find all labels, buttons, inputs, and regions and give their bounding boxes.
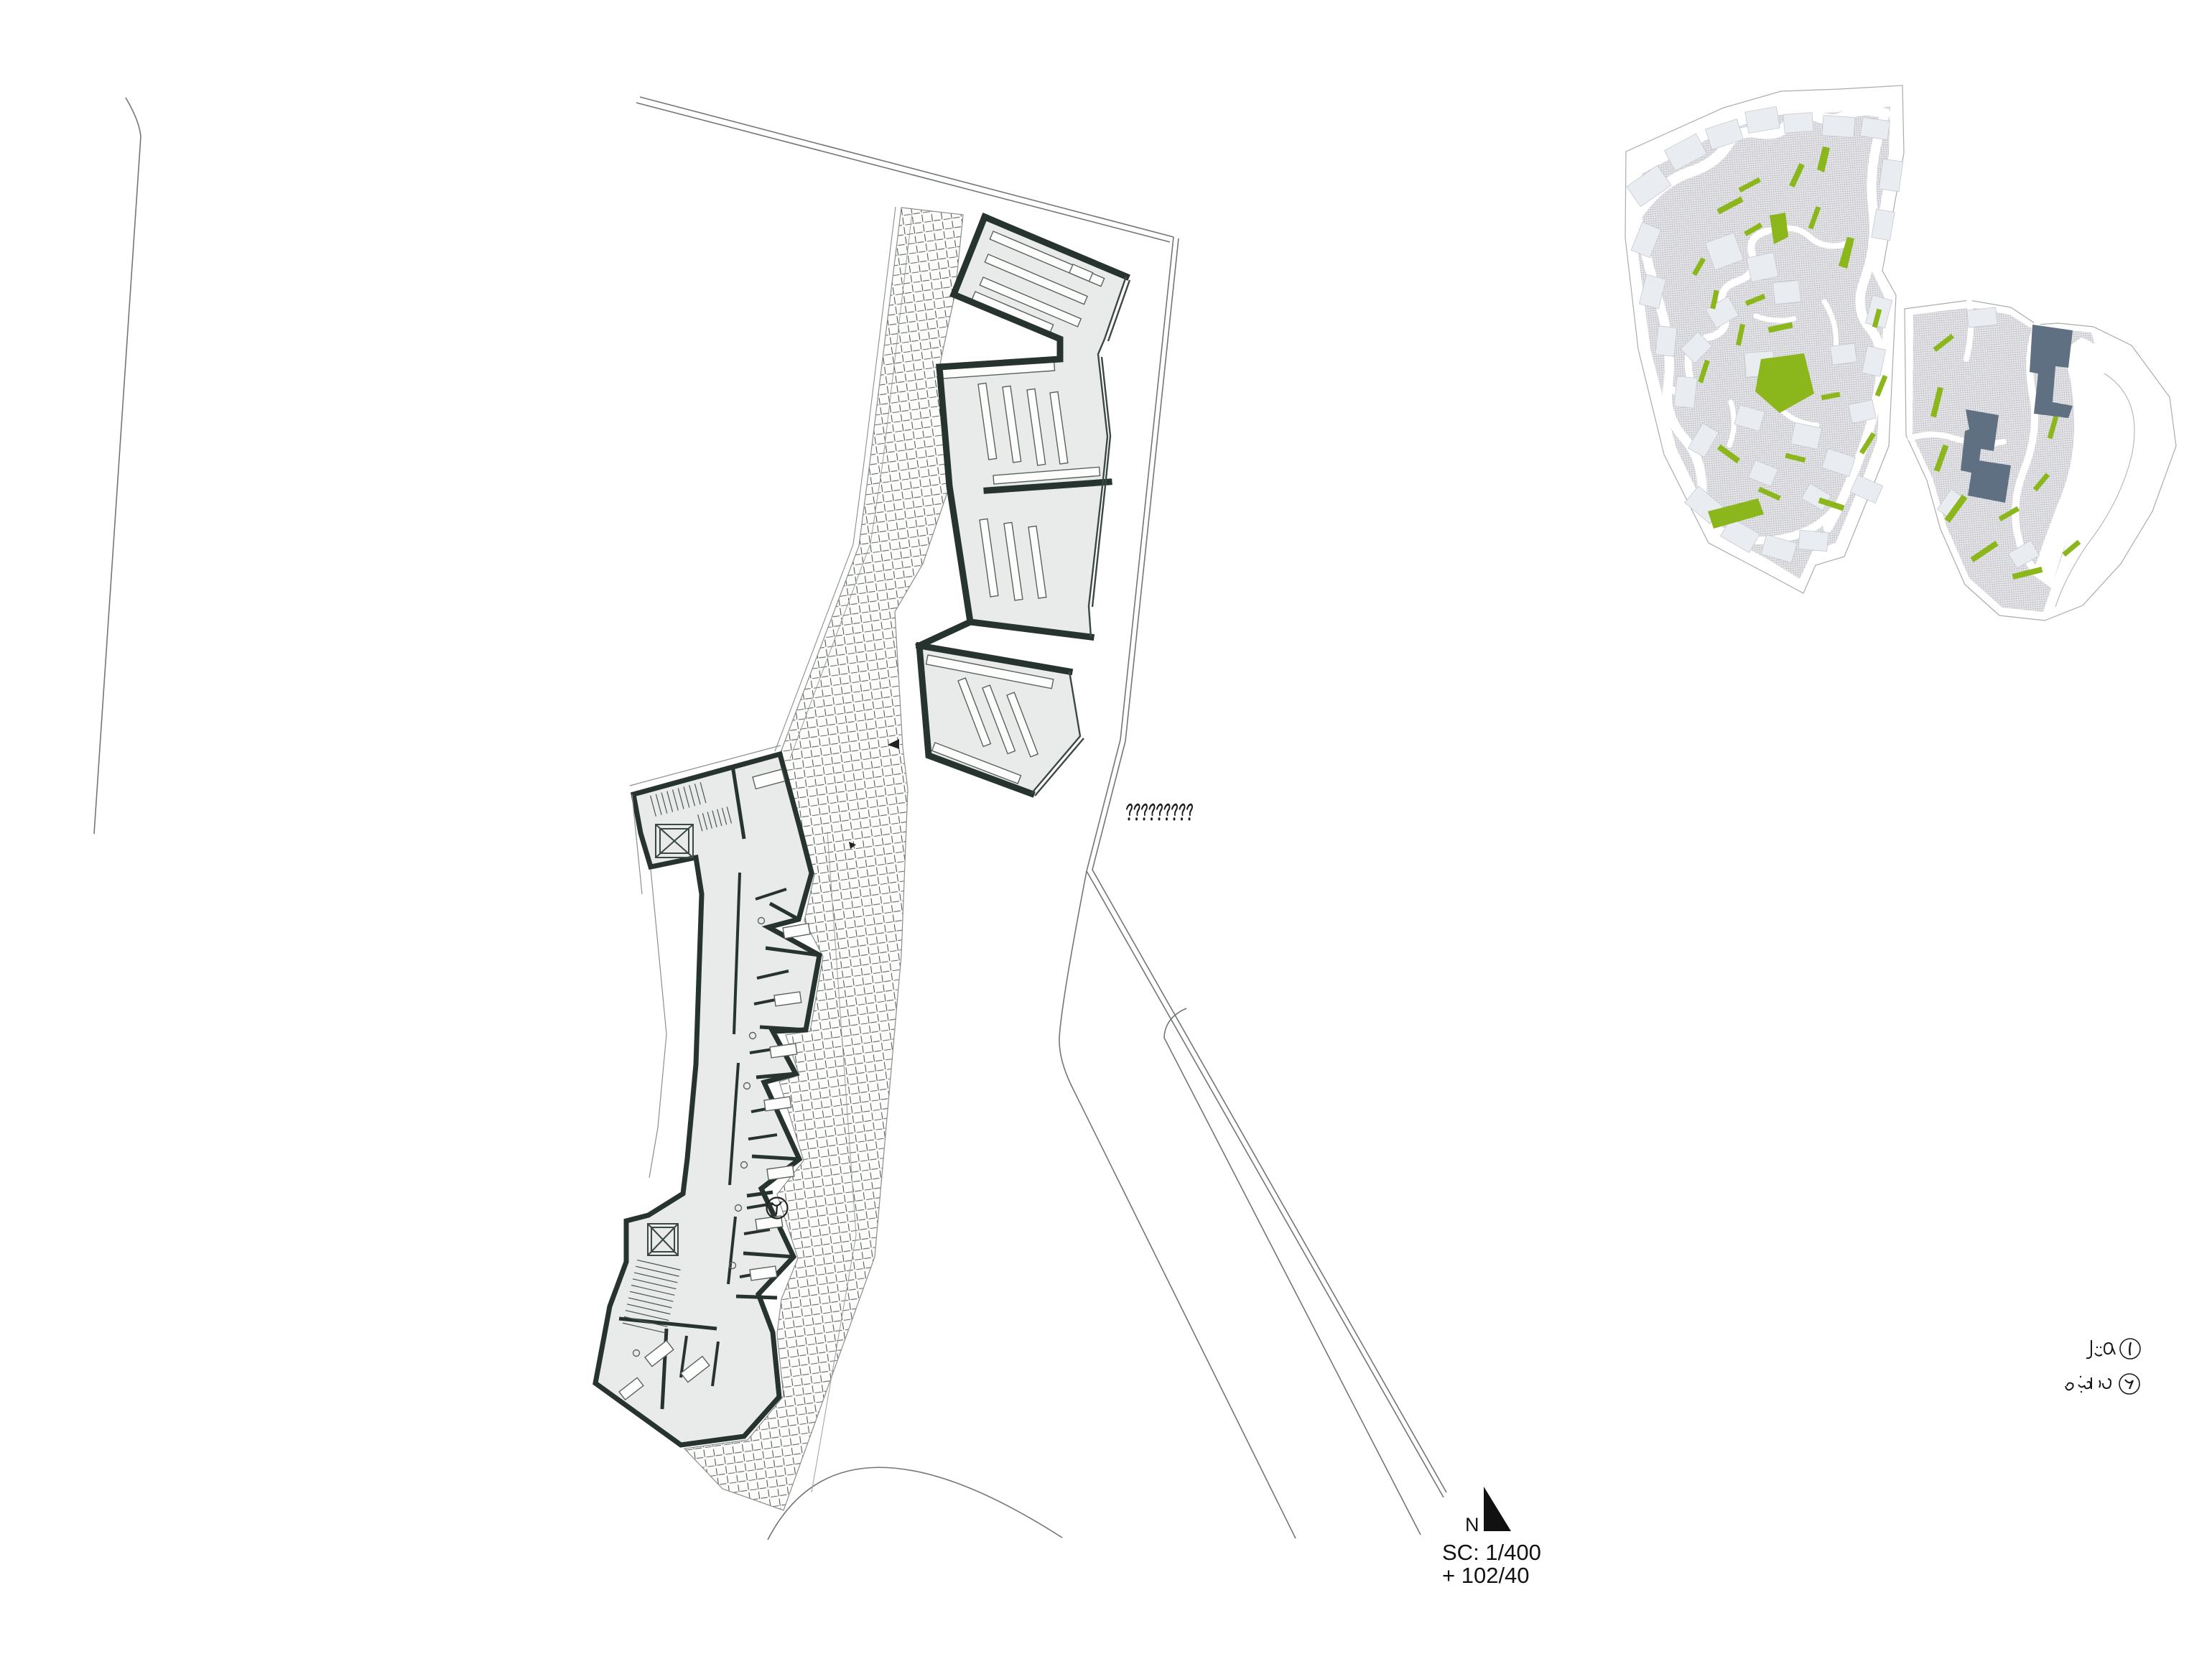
svg-text:SC: 1/400: SC: 1/400 [1442,1540,1541,1565]
svg-text:N: N [1465,1514,1479,1535]
svg-text:+ 102/40: + 102/40 [1442,1563,1530,1588]
